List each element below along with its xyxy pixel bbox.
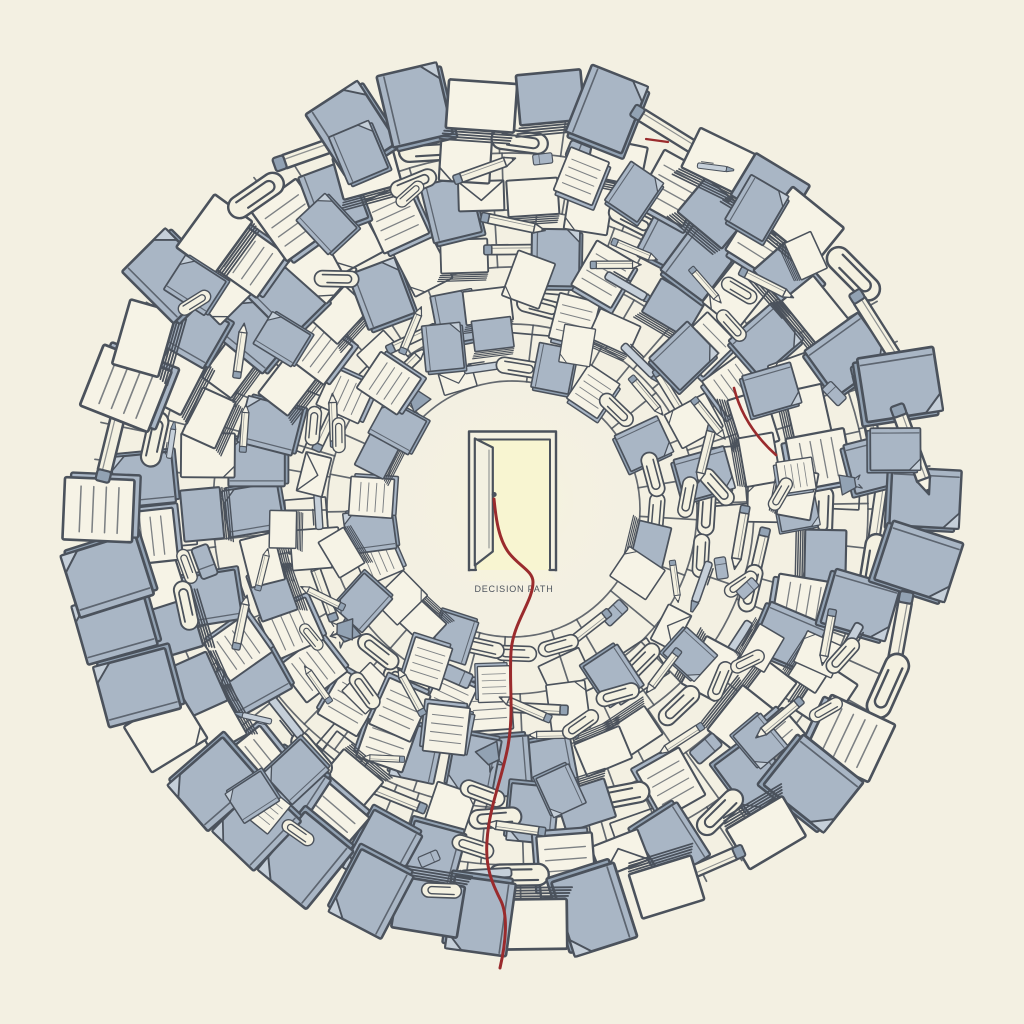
svg-text:DECISION PATH: DECISION PATH [474, 584, 553, 594]
